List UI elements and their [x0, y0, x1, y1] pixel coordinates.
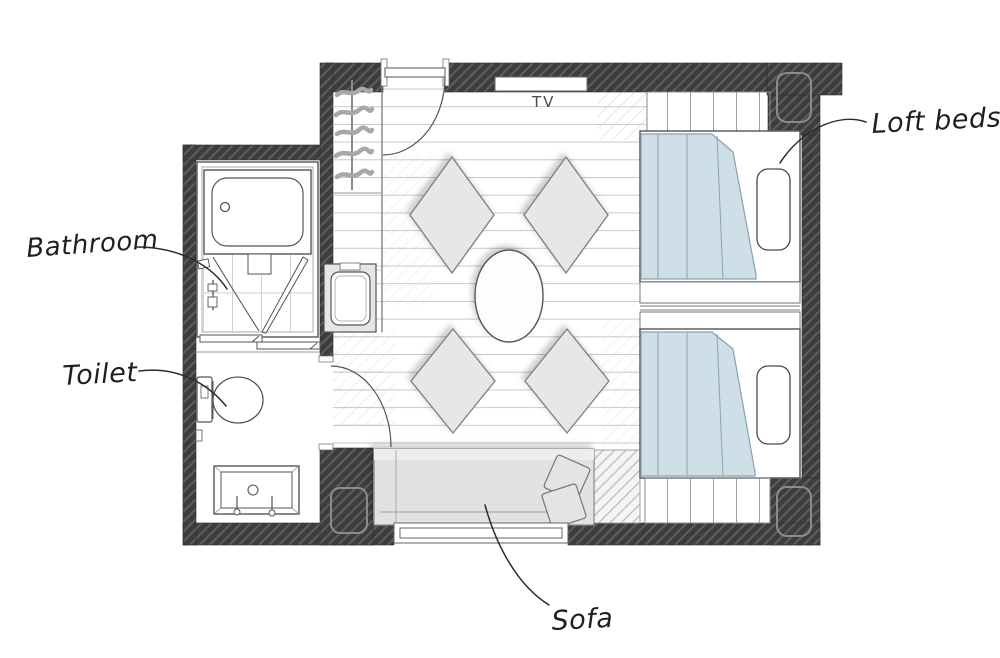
bed-steps — [594, 450, 640, 523]
bathroom-room — [197, 162, 320, 349]
sofa-label: Sofa — [551, 603, 614, 637]
sofa — [374, 449, 594, 529]
paper-holder — [196, 430, 202, 441]
mini-sink-unit — [324, 263, 376, 332]
toilet-label: Toilet — [62, 357, 139, 392]
floor-plan: Bathroom Toilet Loft beds Sofa TV — [0, 0, 1000, 658]
loft-beds-label: Loft beds — [871, 102, 1000, 140]
bed-divider — [640, 282, 800, 329]
loft-beds — [640, 92, 800, 523]
shower-counter — [248, 254, 271, 274]
loft-bed-upper — [640, 131, 800, 282]
bed-foot-platform — [645, 478, 770, 523]
bed-head-platform — [647, 92, 770, 131]
bathtub — [204, 170, 311, 254]
sink-tap — [340, 263, 360, 270]
tv-label: TV — [531, 93, 555, 111]
tub-drain — [221, 203, 230, 212]
pillow — [757, 366, 790, 444]
floor-plan-drawing: Bathroom Toilet Loft beds Sofa TV — [0, 0, 1000, 658]
low-table — [475, 250, 543, 342]
tv-board — [495, 77, 587, 91]
basin-drain — [248, 485, 258, 495]
loft-bed-lower — [640, 329, 800, 478]
bathroom-label: Bathroom — [25, 225, 159, 264]
window — [394, 523, 568, 543]
pillow — [757, 169, 790, 250]
door-leaf — [385, 68, 445, 77]
vanity-basin — [214, 466, 299, 516]
